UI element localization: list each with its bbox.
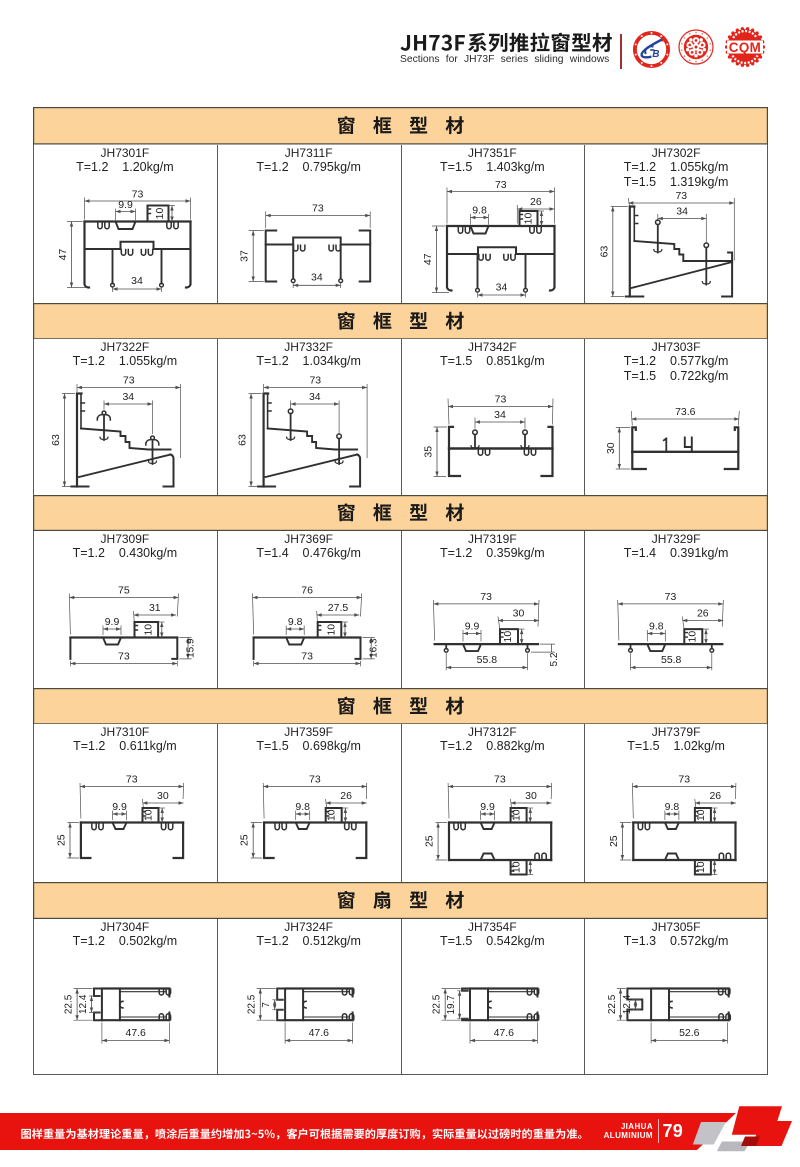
svg-text:73: 73: [312, 203, 324, 214]
svg-text:12.4: 12.4: [622, 994, 633, 1014]
svg-text:63: 63: [599, 245, 610, 257]
svg-text:76: 76: [302, 585, 314, 596]
svg-text:47.6: 47.6: [125, 1027, 146, 1038]
svg-text:22.5: 22.5: [247, 994, 258, 1014]
svg-text:34: 34: [122, 392, 134, 403]
svg-text:73: 73: [495, 395, 507, 406]
svg-text:16.3: 16.3: [369, 638, 380, 658]
svg-text:12.4: 12.4: [77, 994, 88, 1014]
svg-text:25: 25: [425, 835, 436, 847]
svg-text:10: 10: [327, 809, 338, 821]
svg-text:34: 34: [309, 392, 321, 403]
svg-text:63: 63: [238, 434, 249, 446]
svg-text:15.9: 15.9: [185, 638, 196, 658]
svg-text:9.8: 9.8: [296, 802, 311, 813]
svg-text:9.9: 9.9: [480, 802, 495, 813]
svg-text:73: 73: [302, 651, 314, 662]
svg-text:73.6: 73.6: [675, 407, 696, 418]
svg-text:26: 26: [697, 608, 709, 619]
svg-text:9.8: 9.8: [288, 616, 303, 627]
svg-text:63: 63: [50, 434, 61, 446]
svg-text:10: 10: [154, 207, 165, 219]
svg-text:55.8: 55.8: [477, 654, 498, 665]
svg-text:25: 25: [609, 835, 620, 847]
svg-text:55.8: 55.8: [661, 654, 682, 665]
svg-text:34: 34: [311, 272, 323, 283]
svg-text:34: 34: [131, 275, 143, 286]
svg-text:10: 10: [327, 623, 338, 635]
svg-text:10: 10: [512, 809, 523, 821]
svg-text:73: 73: [310, 376, 322, 387]
svg-text:73: 73: [122, 376, 134, 387]
svg-text:73: 73: [480, 591, 492, 602]
svg-text:9.9: 9.9: [104, 616, 119, 627]
svg-text:25: 25: [240, 834, 251, 846]
svg-text:10: 10: [143, 623, 154, 635]
svg-text:9.8: 9.8: [472, 205, 487, 216]
svg-text:73: 73: [495, 180, 507, 191]
svg-text:10: 10: [523, 212, 534, 224]
svg-text:47.6: 47.6: [309, 1027, 330, 1038]
svg-text:37: 37: [240, 250, 251, 262]
svg-text:73: 73: [125, 775, 137, 786]
svg-text:10: 10: [696, 809, 707, 821]
svg-text:9.8: 9.8: [649, 621, 664, 632]
svg-text:22.5: 22.5: [432, 994, 443, 1014]
svg-text:73: 73: [664, 591, 676, 602]
svg-text:9.9: 9.9: [118, 200, 133, 211]
svg-text:5.2: 5.2: [549, 652, 560, 666]
svg-text:9.8: 9.8: [664, 802, 679, 813]
svg-text:26: 26: [341, 791, 353, 802]
svg-text:73: 73: [131, 189, 143, 200]
svg-text:34: 34: [496, 282, 508, 293]
svg-text:B: B: [652, 49, 659, 60]
svg-text:22.5: 22.5: [63, 994, 74, 1014]
svg-text:30: 30: [525, 791, 537, 802]
svg-text:10: 10: [503, 630, 514, 642]
svg-text:27.5: 27.5: [328, 602, 349, 613]
svg-text:75: 75: [118, 585, 130, 596]
svg-text:10: 10: [512, 861, 523, 873]
svg-text:73: 73: [675, 191, 687, 202]
svg-text:35: 35: [423, 446, 434, 458]
svg-text:22.5: 22.5: [607, 994, 618, 1014]
svg-text:73: 73: [309, 775, 321, 786]
svg-text:47: 47: [57, 248, 68, 260]
svg-text:10: 10: [143, 809, 154, 821]
svg-text:30: 30: [605, 442, 616, 454]
svg-text:7: 7: [261, 1001, 272, 1007]
svg-text:25: 25: [56, 834, 67, 846]
svg-text:30: 30: [513, 608, 525, 619]
svg-text:47.6: 47.6: [494, 1027, 515, 1038]
svg-text:9.9: 9.9: [465, 621, 480, 632]
svg-text:31: 31: [148, 603, 160, 614]
svg-text:34: 34: [494, 410, 506, 421]
svg-text:34: 34: [676, 206, 688, 217]
svg-text:26: 26: [709, 791, 721, 802]
svg-text:9.9: 9.9: [112, 802, 127, 813]
svg-text:10: 10: [696, 861, 707, 873]
svg-text:26: 26: [530, 197, 542, 208]
svg-text:73: 73: [118, 651, 130, 662]
svg-text:73: 73: [678, 775, 690, 786]
svg-text:73: 73: [494, 775, 506, 786]
svg-text:30: 30: [157, 791, 169, 802]
svg-text:47: 47: [423, 253, 434, 265]
svg-text:10: 10: [687, 630, 698, 642]
svg-text:CQM: CQM: [729, 40, 761, 55]
svg-text:52.6: 52.6: [679, 1027, 700, 1038]
svg-text:19.7: 19.7: [446, 994, 457, 1014]
